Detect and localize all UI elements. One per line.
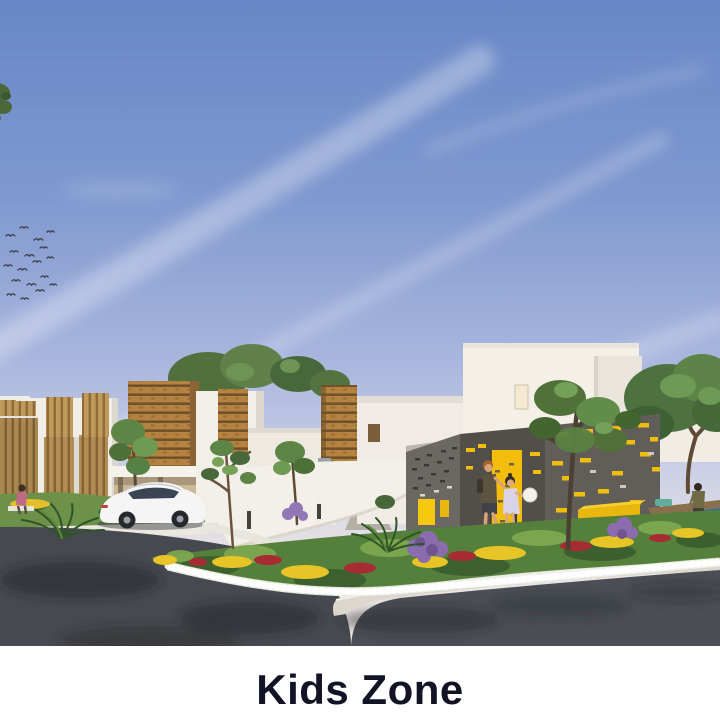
kids-zone-card: Kids Zone — [0, 0, 720, 720]
caption-text: Kids Zone — [0, 667, 720, 713]
pool-bench — [655, 499, 672, 506]
balloon — [523, 488, 537, 502]
pavilion-side-window — [418, 499, 435, 525]
render-image[interactable] — [0, 0, 720, 646]
render-scene — [0, 0, 720, 646]
